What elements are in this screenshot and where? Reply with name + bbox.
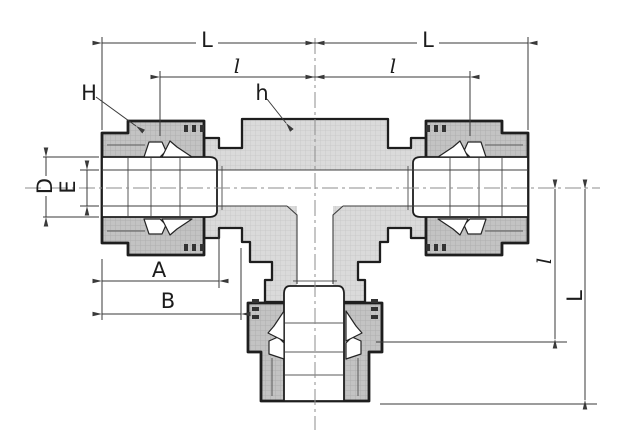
dim-label-outer-dia: D — [33, 178, 57, 194]
dim-label-branch-length: L — [563, 290, 587, 302]
dim-label-a: A — [152, 258, 167, 282]
dim-label-b: B — [161, 289, 175, 313]
label-body-wrench: h — [255, 81, 268, 105]
left-tube — [102, 157, 217, 217]
dim-label-length-left: L — [201, 28, 213, 52]
label-nut-wrench: H — [81, 81, 97, 105]
dim-label-bore-dia: E — [56, 180, 80, 193]
leader-lines-right — [376, 342, 597, 404]
dim-label-branch-inner: l — [532, 258, 556, 264]
dim-label-length-right: L — [422, 28, 434, 52]
dim-label-inner-left: l — [234, 54, 240, 78]
dim-label-inner-right: l — [390, 54, 396, 78]
tee-fitting-drawing: L L l l H h D E A B l L — [0, 0, 625, 438]
drawing-canvas: L L l l H h D E A B l L — [0, 0, 625, 438]
